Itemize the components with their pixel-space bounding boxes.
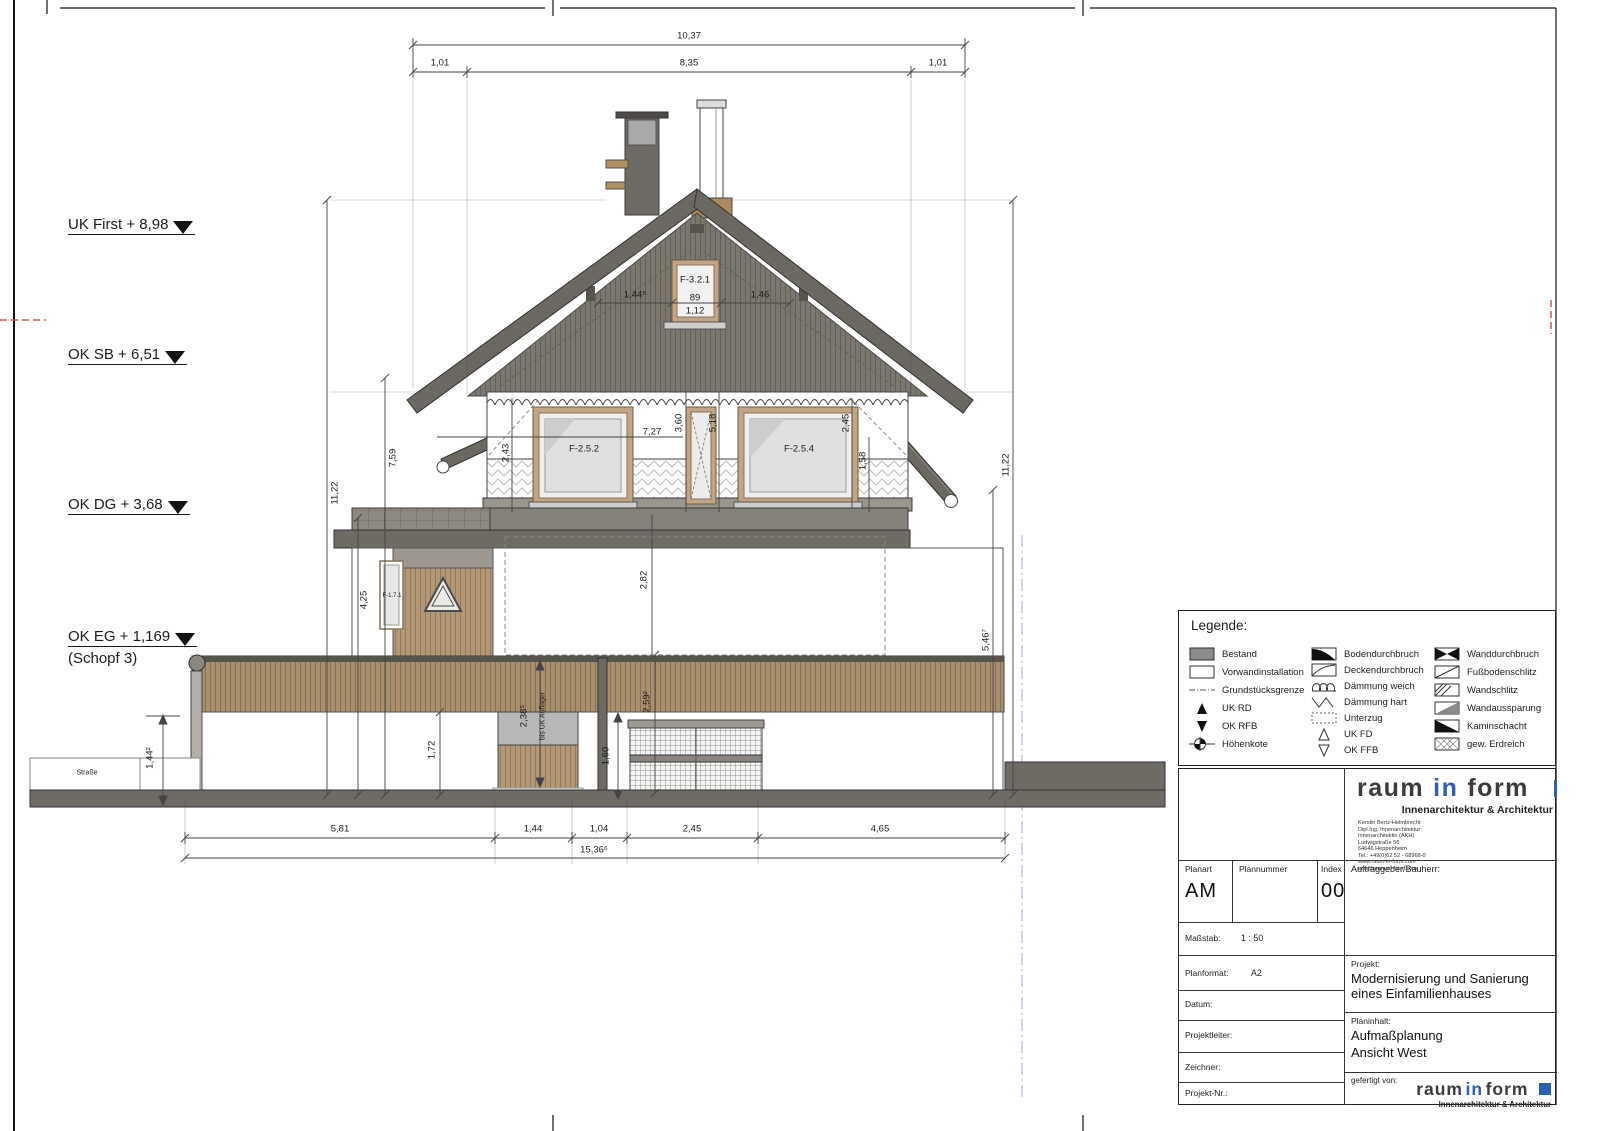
legend-item: gew. Erdreich bbox=[1434, 737, 1541, 751]
dim-top-left: 1,01 bbox=[431, 58, 450, 69]
legend-item: Unterzug bbox=[1311, 711, 1424, 725]
uk-fd-triangle-icon bbox=[1311, 727, 1337, 741]
dim-bot-5: 4,65 bbox=[871, 824, 890, 835]
dim-dg-f: 1,58 bbox=[858, 452, 869, 471]
footer-logo-word-2: in bbox=[1466, 1079, 1484, 1099]
planinhalt-line2: Ansicht West bbox=[1345, 1043, 1557, 1060]
legend-item: Wandaussparung bbox=[1434, 701, 1541, 715]
index-cell: Index 00 bbox=[1318, 861, 1345, 923]
massstab-value: 1 : 50 bbox=[1241, 933, 1264, 943]
legend-label: Dämmung hart bbox=[1344, 697, 1407, 708]
level-ok-sb: OK SB + 6,51 bbox=[68, 346, 187, 365]
window-dg-left bbox=[529, 407, 637, 508]
legend-item: Vorwandinstallation bbox=[1189, 665, 1304, 679]
projektleiter-label: Projektleiter: bbox=[1179, 1021, 1344, 1040]
massstab-label: Maßstab: bbox=[1185, 933, 1220, 943]
legend-label: UK FD bbox=[1344, 729, 1373, 740]
planart-label: Planart bbox=[1179, 861, 1232, 874]
legend-item: Höhenkote bbox=[1189, 737, 1304, 751]
daemmung-weich-icon bbox=[1311, 679, 1337, 693]
dim-bot-4: 2,45 bbox=[683, 824, 702, 835]
legend-label: Unterzug bbox=[1344, 713, 1383, 724]
level-ok-eg: OK EG + 1,169 bbox=[68, 628, 197, 647]
dim-eg-b: 2,38⁵ bbox=[519, 705, 530, 727]
massstab-cell: Maßstab: 1 : 50 bbox=[1179, 923, 1345, 956]
street-label: Straße bbox=[76, 770, 97, 777]
planart-cell: Planart AM bbox=[1179, 861, 1233, 923]
dim-bot-1: 5,81 bbox=[331, 824, 350, 835]
legend-item: Wanddurchbruch bbox=[1434, 647, 1541, 661]
dim-dg-c: 3,60 bbox=[674, 414, 685, 433]
erdreich-icon bbox=[1434, 737, 1460, 751]
planformat-value: A2 bbox=[1251, 968, 1262, 978]
legend-item: Dämmung weich bbox=[1311, 679, 1424, 693]
projekt-cell: Projekt: Modernisierung und Sanierung ei… bbox=[1345, 956, 1557, 1013]
dim-dg-a: 2,43 bbox=[501, 444, 512, 463]
titleblock-empty-cell bbox=[1179, 769, 1345, 861]
dim-eg-d: 1,60 bbox=[601, 747, 612, 766]
level-marker-icon bbox=[165, 351, 185, 364]
legend-label: Vorwandinstallation bbox=[1222, 667, 1304, 678]
legend-label: OK RFB bbox=[1222, 721, 1257, 732]
level-ok-eg-note: (Schopf 3) bbox=[68, 650, 139, 668]
legend-label: Grundstücksgrenze bbox=[1222, 685, 1304, 696]
legend-item: Dämmung hart bbox=[1311, 695, 1424, 709]
legend-label: Deckendurchbruch bbox=[1344, 665, 1424, 676]
company-logo: raum in form bbox=[1345, 769, 1557, 803]
footer-logo: raum in form Innenarchitektur & Architek… bbox=[1416, 1079, 1551, 1109]
dim-right-low: 5,46⁷ bbox=[981, 629, 992, 651]
dim-top-mid: 8,35 bbox=[680, 58, 699, 69]
planart-value: AM bbox=[1179, 874, 1232, 903]
dim-gable-win-w2: 1,12 bbox=[686, 306, 705, 317]
chimney-left bbox=[606, 112, 668, 215]
dim-eg-b-note: bis UK Auflager bbox=[540, 692, 547, 740]
ok-rfb-triangle-icon bbox=[1189, 719, 1215, 733]
mesh-gate bbox=[628, 720, 764, 790]
dim-bot-3: 1,04 bbox=[590, 824, 609, 835]
dim-gable-right: 1,46 bbox=[751, 290, 770, 301]
fussbodenschlitz-icon bbox=[1434, 665, 1460, 679]
level-marker-icon bbox=[173, 221, 193, 234]
legend-item: Bodendurchbruch bbox=[1311, 647, 1424, 661]
legend-item: UK RD bbox=[1189, 701, 1304, 715]
logo-word-3: form bbox=[1467, 774, 1529, 803]
ok-ffb-triangle-icon bbox=[1311, 743, 1337, 757]
level-ok-dg: OK DG + 3,68 bbox=[68, 496, 190, 515]
wanddurchbruch-icon bbox=[1434, 647, 1460, 661]
legend-item: Kaminschacht bbox=[1434, 719, 1541, 733]
legend-col-2: Bodendurchbruch Deckendurchbruch Dämmung… bbox=[1311, 647, 1424, 757]
unterzug-icon bbox=[1311, 711, 1337, 725]
projekt-value: Modernisierung und Sanierung eines Einfa… bbox=[1345, 969, 1557, 1001]
level-marker-icon bbox=[175, 633, 195, 646]
bestand-swatch-icon bbox=[1189, 647, 1215, 661]
legend-col-3: Wanddurchbruch Fußbodenschlitz Wandschli… bbox=[1434, 647, 1541, 751]
projektnr-label: Projekt-Nr.: bbox=[1179, 1083, 1344, 1098]
window-gable-label: F-3.2.1 bbox=[680, 275, 710, 286]
drawing-sheet: UK First + 8,98 OK SB + 6,51 OK DG + 3,6… bbox=[0, 0, 1600, 1131]
dim-dg-b: 7,27 bbox=[643, 427, 662, 438]
zeichner-cell: Zeichner: bbox=[1179, 1053, 1345, 1083]
legend-item: OK RFB bbox=[1189, 719, 1304, 733]
legend-item: UK FD bbox=[1311, 727, 1424, 741]
dim-eg-c: 2,59² bbox=[642, 691, 653, 713]
legend-label: Wandschlitz bbox=[1467, 685, 1518, 696]
dim-right-total: 11,22 bbox=[1001, 453, 1012, 476]
footer-logo-tagline: Innenarchitektur & Architektur bbox=[1416, 1100, 1551, 1109]
legend-panel: Legende: Bestand Vorwandinstallation Gru… bbox=[1178, 610, 1556, 766]
legend-item: Wandschlitz bbox=[1434, 683, 1541, 697]
level-uk-first-label: UK First + 8,98 bbox=[68, 216, 168, 233]
dim-bot-total: 15,36⁶ bbox=[580, 845, 608, 856]
legend-label: Fußbodenschlitz bbox=[1467, 667, 1537, 678]
planformat-cell: Planformat: A2 bbox=[1179, 956, 1345, 991]
wandaussparung-icon bbox=[1434, 701, 1460, 715]
legend-label: Dämmung weich bbox=[1344, 681, 1415, 692]
legend-item: Deckendurchbruch bbox=[1311, 663, 1424, 677]
legend-label: Kaminschacht bbox=[1467, 721, 1527, 732]
legend-item: Bestand bbox=[1189, 647, 1304, 661]
projekt-label: Projekt: bbox=[1345, 956, 1557, 969]
dim-left-mid: 7,59 bbox=[388, 449, 399, 468]
legend-label: UK RD bbox=[1222, 703, 1252, 714]
deckendurchbruch-icon bbox=[1311, 663, 1337, 677]
level-uk-first: UK First + 8,98 bbox=[68, 216, 195, 235]
legend-title: Legende: bbox=[1191, 618, 1247, 633]
window-eg-left-label: F-1.7.1 bbox=[382, 593, 401, 599]
zeichner-label: Zeichner: bbox=[1179, 1053, 1344, 1072]
datum-label: Datum: bbox=[1179, 991, 1344, 1009]
wandschlitz-icon bbox=[1434, 683, 1460, 697]
bodendurchbruch-icon bbox=[1311, 647, 1337, 661]
legend-label: Bodendurchbruch bbox=[1344, 649, 1419, 660]
planinhalt-line1: Aufmaßplanung bbox=[1345, 1026, 1557, 1043]
dim-left-total: 11,22 bbox=[330, 481, 341, 504]
level-ok-sb-label: OK SB + 6,51 bbox=[68, 346, 160, 363]
legend-label: Höhenkote bbox=[1222, 739, 1268, 750]
projektleiter-cell: Projektleiter: bbox=[1179, 1021, 1345, 1053]
dim-bot-2: 1,44 bbox=[524, 824, 543, 835]
vorwand-swatch-icon bbox=[1189, 665, 1215, 679]
auftraggeber-cell: Auftraggeber/Bauherr: bbox=[1345, 861, 1557, 956]
projektnr-cell: Projekt-Nr.: bbox=[1179, 1083, 1345, 1105]
dim-gable-win-w: 89 bbox=[690, 293, 701, 304]
level-ok-eg-label: OK EG + 1,169 bbox=[68, 628, 170, 645]
dim-dg-e: 2,45 bbox=[841, 414, 852, 433]
footer-logo-square-icon bbox=[1539, 1083, 1551, 1095]
logo-square-icon bbox=[1554, 780, 1557, 797]
legend-label: Bestand bbox=[1222, 649, 1257, 660]
dim-gable-left: 1,44⁵ bbox=[624, 290, 646, 301]
level-ok-eg-note-label: (Schopf 3) bbox=[68, 650, 137, 667]
planformat-label: Planformat: bbox=[1185, 968, 1228, 978]
level-ok-dg-label: OK DG + 3,68 bbox=[68, 496, 163, 513]
logo-word-2: in bbox=[1433, 774, 1458, 803]
index-label: Index bbox=[1318, 861, 1344, 874]
dim-eg-e: 1,72 bbox=[427, 741, 438, 760]
dim-top-right: 1,01 bbox=[929, 58, 948, 69]
daemmung-hart-icon bbox=[1311, 695, 1337, 709]
legend-item: OK FFB bbox=[1311, 743, 1424, 757]
legend-item: Fußbodenschlitz bbox=[1434, 665, 1541, 679]
dim-top-total: 10,37 bbox=[677, 31, 701, 42]
footer-logo-row: raum in form bbox=[1416, 1079, 1551, 1100]
dim-eg-f: 1,44² bbox=[145, 747, 156, 769]
footer-logo-word-3: form bbox=[1486, 1079, 1529, 1099]
gefertigt-cell: gefertigt von: raum in form Innenarchite… bbox=[1345, 1073, 1557, 1106]
footer-logo-word-1: raum bbox=[1416, 1079, 1463, 1099]
kaminschacht-icon bbox=[1434, 719, 1460, 733]
logo-word-1: raum bbox=[1357, 774, 1424, 803]
datum-cell: Datum: bbox=[1179, 991, 1345, 1021]
auftraggeber-label: Auftraggeber/Bauherr: bbox=[1345, 861, 1557, 874]
legend-label: Wanddurchbruch bbox=[1467, 649, 1539, 660]
fascia-band bbox=[334, 508, 910, 548]
planformat-row: Planformat: A2 bbox=[1179, 956, 1344, 978]
level-marker-icon bbox=[168, 501, 188, 514]
massstab-row: Maßstab: 1 : 50 bbox=[1179, 923, 1344, 943]
planinhalt-label: Planinhalt: bbox=[1345, 1013, 1557, 1026]
planinhalt-cell: Planinhalt: Aufmaßplanung Ansicht West bbox=[1345, 1013, 1557, 1073]
uk-rd-triangle-icon bbox=[1189, 701, 1215, 715]
grenze-line-icon bbox=[1189, 683, 1215, 697]
logo-tagline: Innenarchitektur & Architektur bbox=[1345, 804, 1553, 816]
legend-item: Grundstücksgrenze bbox=[1189, 683, 1304, 697]
hoehenkote-icon bbox=[1189, 737, 1215, 751]
plannummer-label: Plannummer bbox=[1233, 861, 1317, 874]
index-value: 00 bbox=[1318, 874, 1344, 903]
dim-left-low: 4,25 bbox=[359, 591, 370, 610]
legend-label: Wandaussparung bbox=[1467, 703, 1541, 714]
canopy-left bbox=[437, 437, 489, 473]
legend-col-1: Bestand Vorwandinstallation Grundstücksg… bbox=[1189, 647, 1304, 751]
window-dg-right-label: F-2.5.4 bbox=[784, 444, 814, 455]
window-dg-left-label: F-2.5.2 bbox=[569, 444, 599, 455]
legend-label: OK FFB bbox=[1344, 745, 1378, 756]
legend-label: gew. Erdreich bbox=[1467, 739, 1525, 750]
dim-dg-d: 5,18 bbox=[708, 414, 719, 433]
dim-eg-a: 2,82 bbox=[639, 571, 650, 590]
title-block: raum in form Innenarchitektur & Architek… bbox=[1178, 768, 1556, 1105]
plannummer-cell: Plannummer bbox=[1233, 861, 1318, 923]
titleblock-logo-cell: raum in form Innenarchitektur & Architek… bbox=[1345, 769, 1557, 861]
